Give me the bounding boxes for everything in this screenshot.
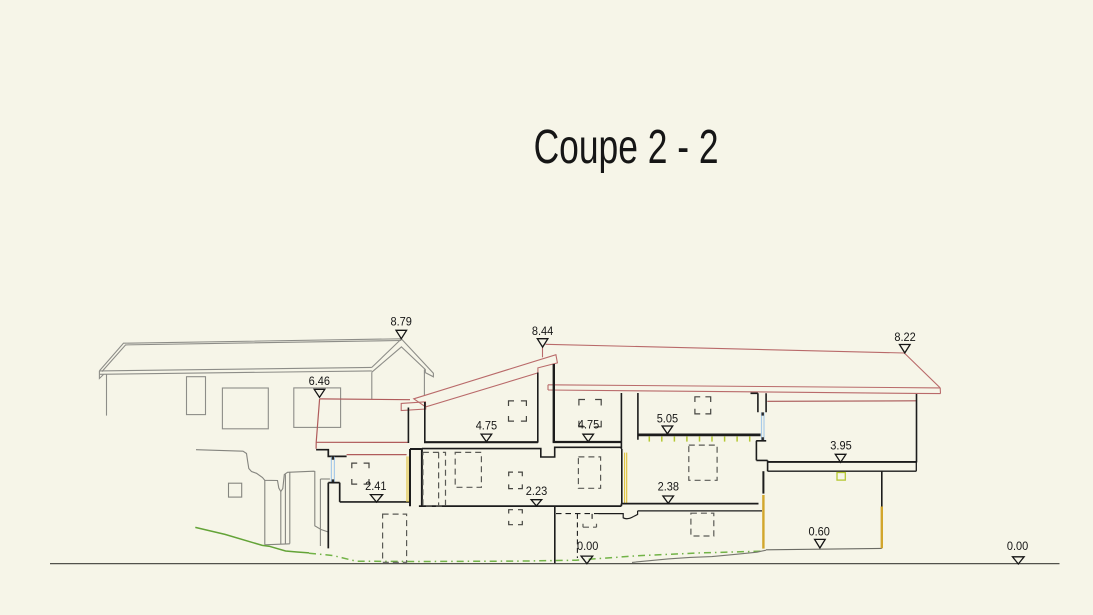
svg-text:8.22: 8.22 xyxy=(894,330,916,344)
svg-text:8.44: 8.44 xyxy=(532,324,554,338)
svg-text:2.23: 2.23 xyxy=(526,484,548,498)
svg-text:0.60: 0.60 xyxy=(809,524,831,538)
svg-text:3.95: 3.95 xyxy=(830,438,852,452)
svg-text:2.41: 2.41 xyxy=(365,479,387,493)
svg-text:4.75: 4.75 xyxy=(476,419,498,433)
svg-text:0.00: 0.00 xyxy=(1007,539,1029,553)
svg-text:Coupe 2 - 2: Coupe 2 - 2 xyxy=(534,121,719,174)
svg-text:5.05: 5.05 xyxy=(657,411,679,425)
svg-text:4.75: 4.75 xyxy=(578,418,600,432)
svg-text:6.46: 6.46 xyxy=(309,374,331,388)
svg-text:2.38: 2.38 xyxy=(658,479,680,493)
svg-text:8.79: 8.79 xyxy=(391,314,413,328)
svg-text:0.00: 0.00 xyxy=(577,539,599,553)
